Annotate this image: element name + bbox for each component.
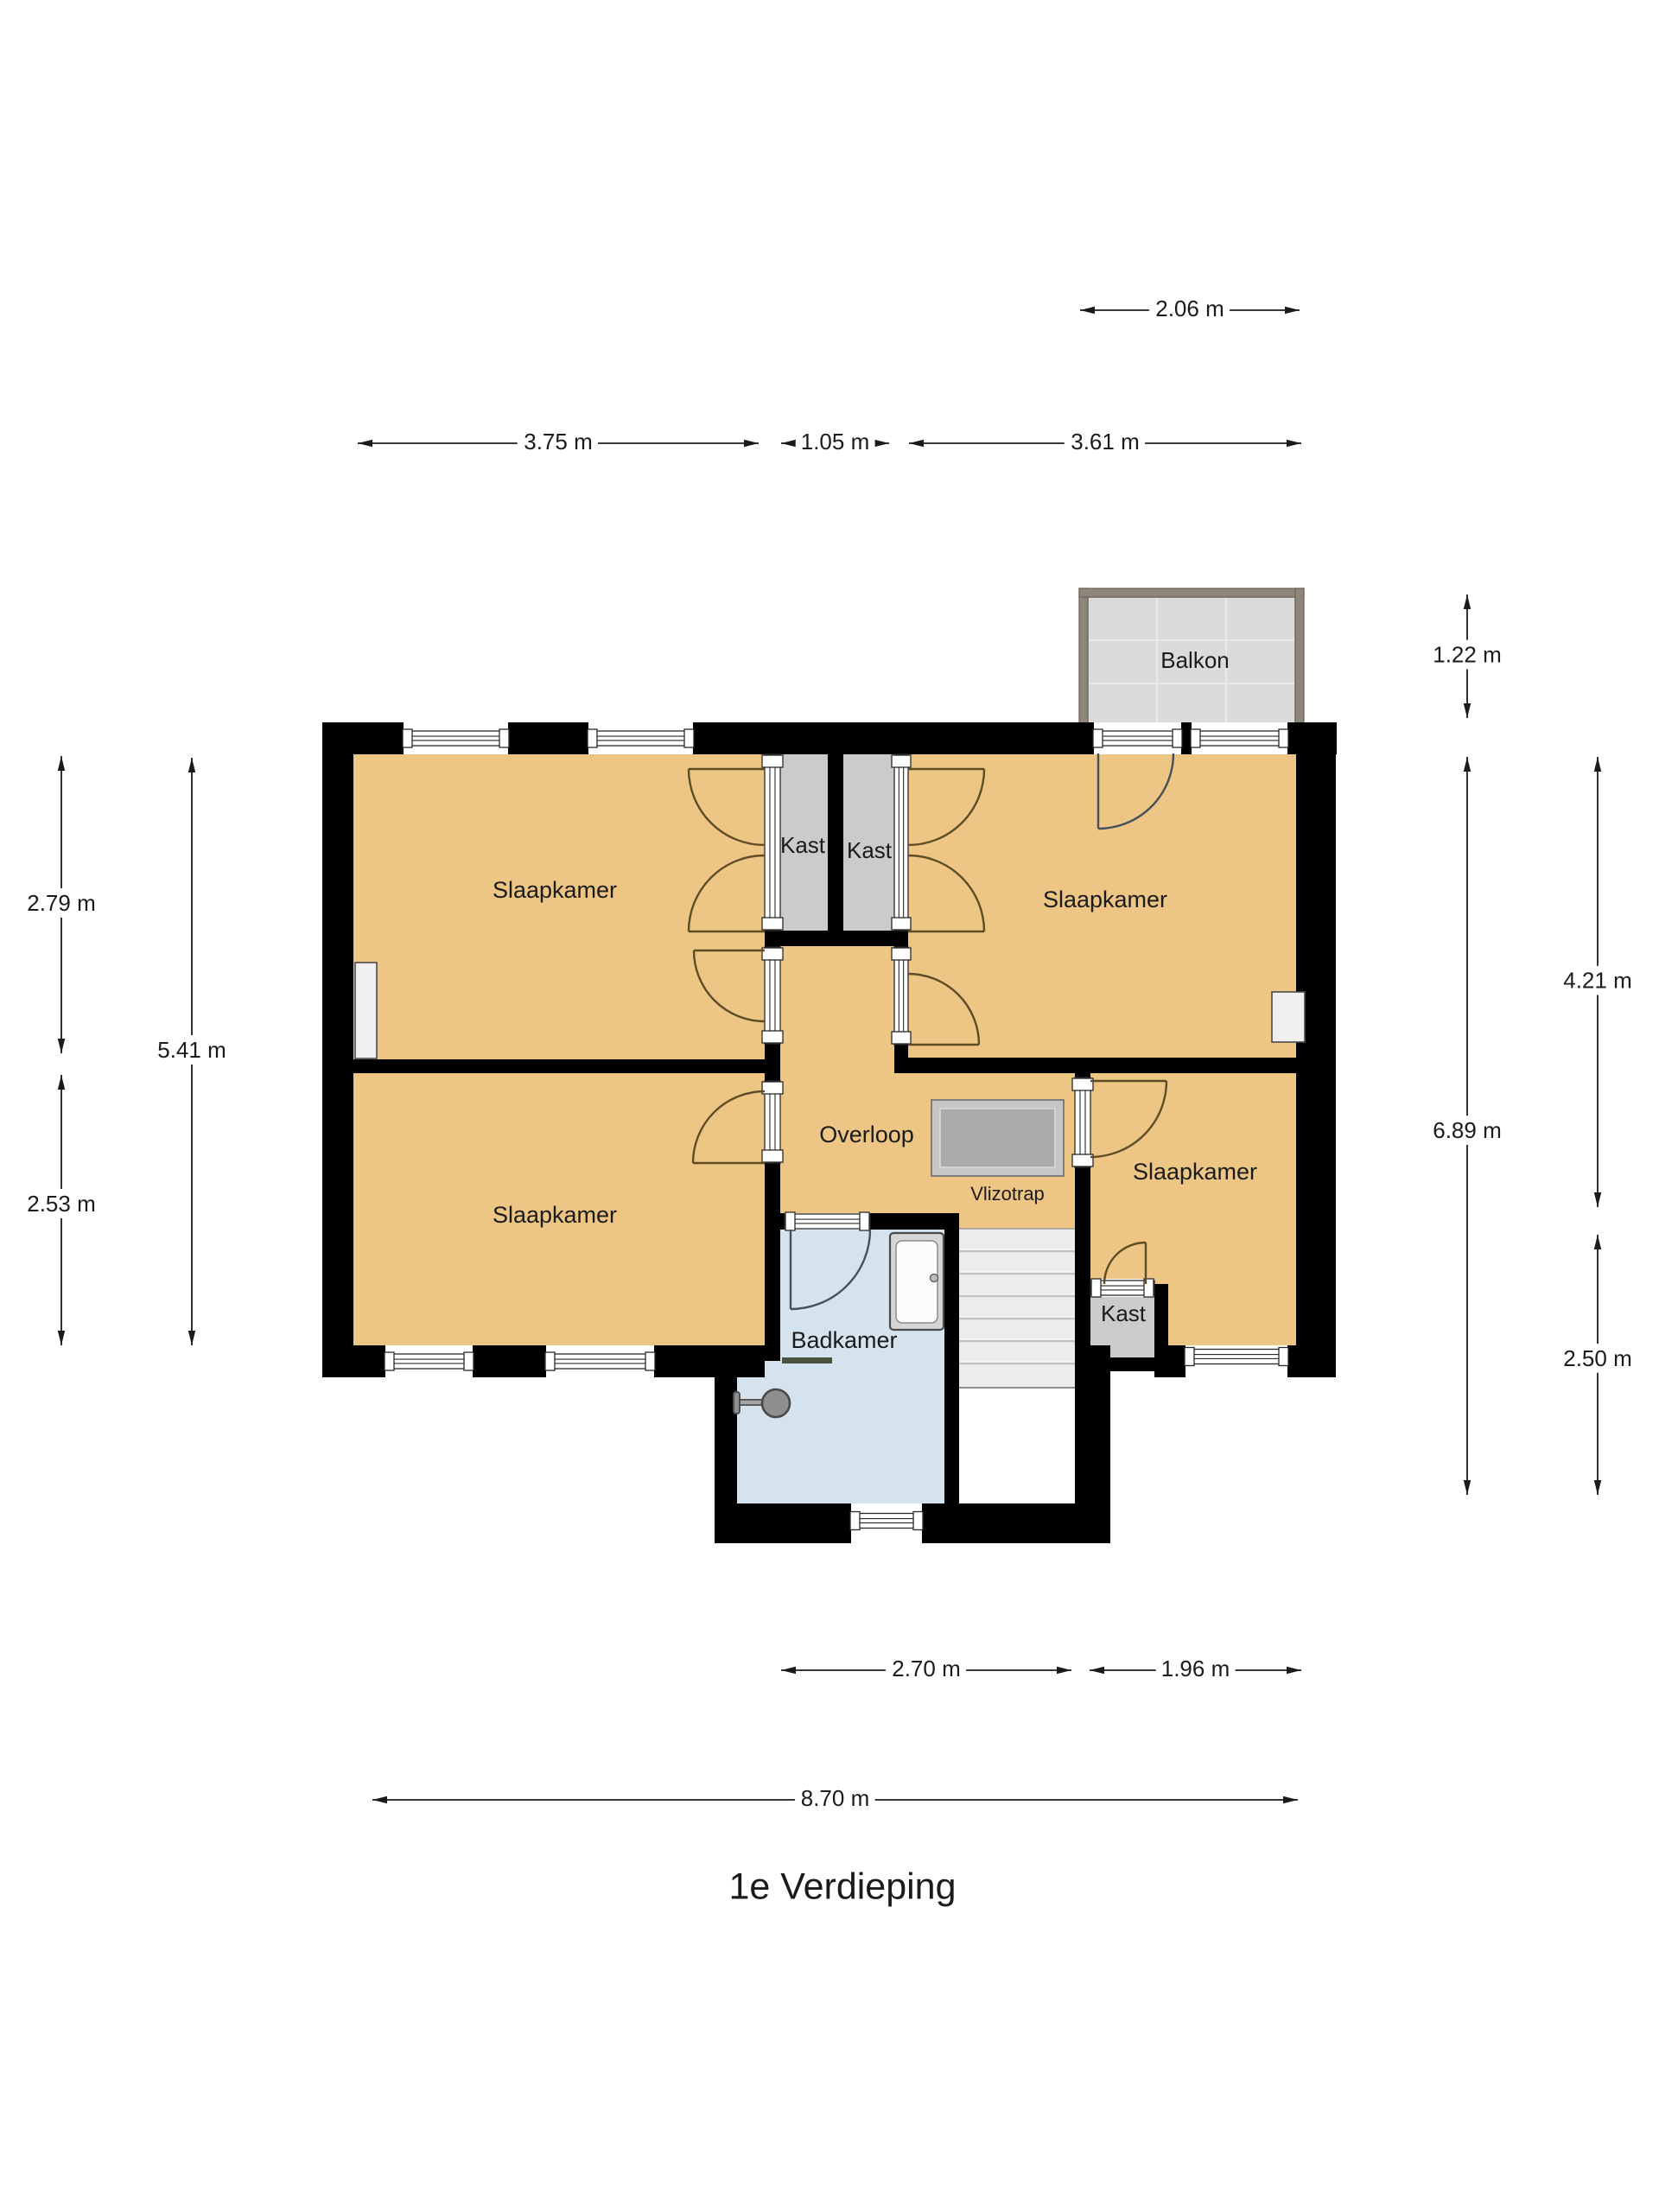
svg-text:Overloop: Overloop <box>819 1122 914 1147</box>
svg-text:6.89 m: 6.89 m <box>1433 1117 1502 1143</box>
svg-text:Kast: Kast <box>780 832 826 858</box>
svg-text:Badkamer: Badkamer <box>791 1327 897 1353</box>
svg-text:8.70 m: 8.70 m <box>801 1785 870 1811</box>
svg-text:2.53 m: 2.53 m <box>27 1191 96 1217</box>
svg-text:Slaapkamer: Slaapkamer <box>493 1202 617 1228</box>
svg-text:1.22 m: 1.22 m <box>1433 641 1502 667</box>
svg-text:2.79 m: 2.79 m <box>27 890 96 916</box>
svg-text:2.06 m: 2.06 m <box>1155 296 1224 321</box>
svg-text:3.75 m: 3.75 m <box>524 429 593 454</box>
svg-text:1.96 m: 1.96 m <box>1161 1656 1230 1681</box>
svg-text:Slaapkamer: Slaapkamer <box>1043 887 1167 912</box>
svg-text:Kast: Kast <box>847 837 893 863</box>
svg-text:1e Verdieping: 1e Verdieping <box>729 1866 957 1907</box>
svg-text:2.50 m: 2.50 m <box>1563 1345 1632 1371</box>
svg-text:5.41 m: 5.41 m <box>157 1037 226 1063</box>
svg-text:4.21 m: 4.21 m <box>1563 967 1632 993</box>
svg-text:Vlizotrap: Vlizotrap <box>970 1183 1045 1205</box>
svg-text:Slaapkamer: Slaapkamer <box>1133 1159 1257 1185</box>
svg-text:Balkon: Balkon <box>1160 647 1230 673</box>
svg-text:Kast: Kast <box>1101 1300 1147 1326</box>
svg-text:3.61 m: 3.61 m <box>1071 429 1140 454</box>
svg-text:Slaapkamer: Slaapkamer <box>493 877 617 903</box>
svg-text:2.70 m: 2.70 m <box>892 1656 961 1681</box>
svg-text:1.05 m: 1.05 m <box>801 429 870 454</box>
